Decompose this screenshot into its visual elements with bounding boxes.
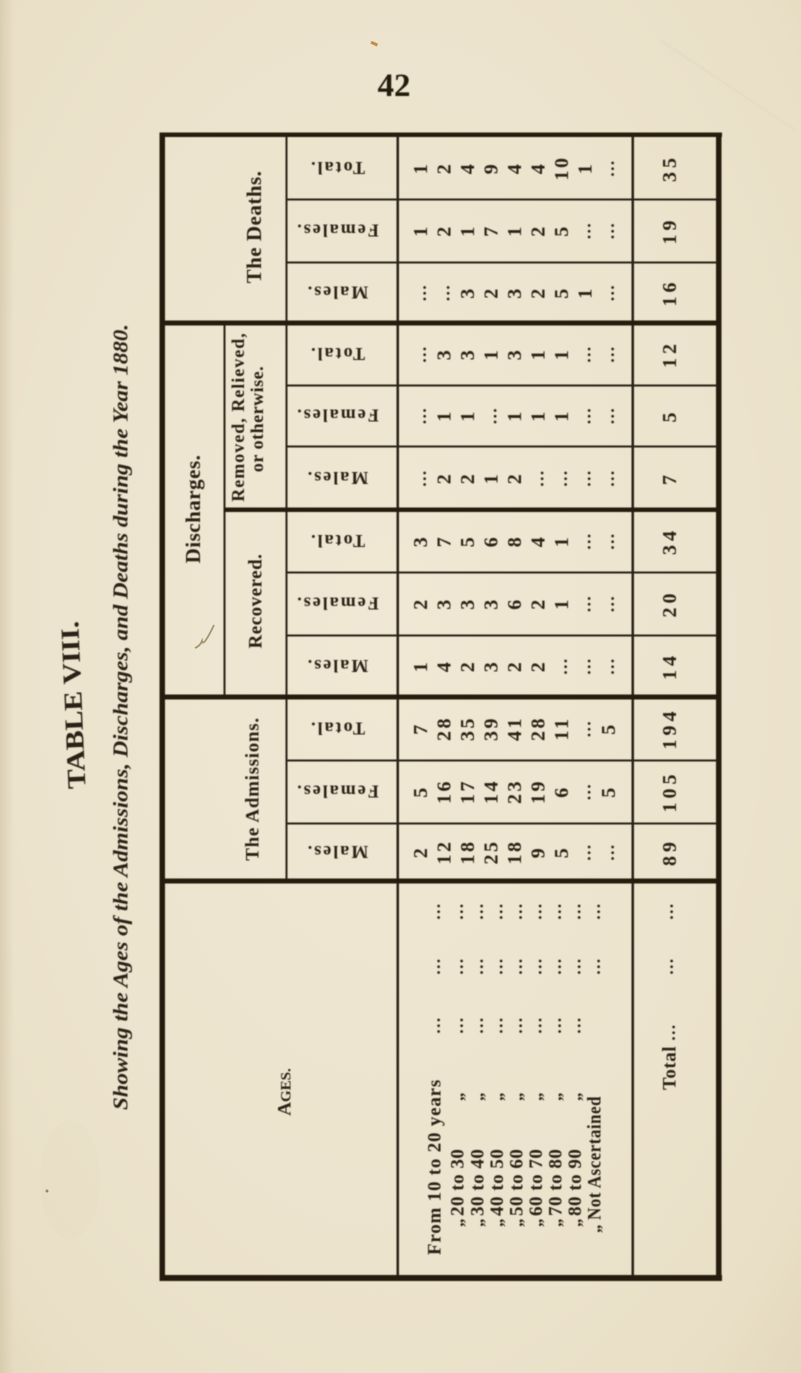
svg-text:...: ... <box>599 222 618 239</box>
svg-text:40 to 50: 40 to 50 <box>487 1149 508 1216</box>
svg-text:20: 20 <box>659 590 681 618</box>
svg-text:The Admissions.: The Admissions. <box>242 717 263 861</box>
svg-text:1: 1 <box>504 409 526 422</box>
svg-text:...: ... <box>411 345 430 362</box>
svg-text:5: 5 <box>410 785 432 798</box>
svg-text:7: 7 <box>433 535 455 548</box>
svg-text:1: 1 <box>457 409 479 422</box>
svg-text:9: 9 <box>527 846 549 859</box>
svg-text:„: „ <box>546 1219 565 1228</box>
svg-text:Females.: Females. <box>295 220 378 240</box>
svg-text:...: ... <box>575 783 594 800</box>
svg-text:1: 1 <box>551 597 573 610</box>
svg-text:...: ... <box>585 957 604 974</box>
svg-text:11: 11 <box>551 717 573 741</box>
svg-text:4: 4 <box>527 162 549 175</box>
svg-text:...: ... <box>487 957 506 974</box>
svg-text:Showing the Ages of the Admiss: Showing the Ages of the Admissions, Disc… <box>108 324 132 1110</box>
svg-text:...: ... <box>507 1016 526 1033</box>
svg-text:...: ... <box>448 1016 467 1033</box>
svg-text:AGES.: AGES. <box>274 1068 295 1116</box>
svg-text:42: 42 <box>378 68 411 104</box>
svg-text:Recovered.: Recovered. <box>245 554 266 649</box>
svg-text:1: 1 <box>433 409 455 422</box>
svg-text:12: 12 <box>433 840 455 865</box>
svg-text:5: 5 <box>598 785 620 798</box>
svg-text:2: 2 <box>527 286 549 299</box>
svg-text:3: 3 <box>433 597 455 610</box>
svg-text:34: 34 <box>659 527 681 555</box>
svg-text:...: ... <box>575 222 594 239</box>
svg-text:...: ... <box>411 407 430 424</box>
svg-text:...: ... <box>434 284 453 301</box>
svg-text:...: ... <box>448 957 467 974</box>
svg-text:Total.: Total. <box>309 531 365 551</box>
svg-text:...: ... <box>425 902 444 919</box>
svg-text:1: 1 <box>410 224 432 237</box>
svg-text:2: 2 <box>433 472 455 485</box>
svg-text:3: 3 <box>480 660 502 673</box>
svg-text:1: 1 <box>480 348 502 361</box>
svg-text:1: 1 <box>551 409 573 422</box>
svg-text:5: 5 <box>598 722 620 735</box>
svg-text:3: 3 <box>457 597 479 610</box>
svg-text:1: 1 <box>527 409 549 422</box>
svg-text:2: 2 <box>457 472 479 485</box>
svg-text:Discharges.: Discharges. <box>181 455 205 564</box>
svg-text:Females.: Females. <box>295 781 378 801</box>
svg-text:Total.: Total. <box>309 158 365 178</box>
svg-text:Males.: Males. <box>306 656 368 676</box>
svg-text:...: ... <box>575 469 594 486</box>
svg-text:16: 16 <box>433 779 455 804</box>
svg-text:Males.: Males. <box>306 282 368 302</box>
svg-text:20 to 30: 20 to 30 <box>447 1149 468 1216</box>
svg-text:28: 28 <box>527 716 549 741</box>
svg-text:7: 7 <box>659 471 681 485</box>
svg-text:...: ... <box>599 284 618 301</box>
svg-text:41: 41 <box>504 716 526 741</box>
svg-text:„: „ <box>565 1219 584 1228</box>
svg-text:9: 9 <box>480 162 502 175</box>
svg-text:Females.: Females. <box>295 405 378 425</box>
svg-text:...: ... <box>552 657 571 674</box>
svg-text:...: ... <box>599 595 618 612</box>
svg-text:3: 3 <box>480 597 502 610</box>
svg-text:or otherwise.: or otherwise. <box>247 366 267 472</box>
svg-text:...: ... <box>546 1016 565 1033</box>
svg-text:1: 1 <box>574 162 596 175</box>
svg-text:5: 5 <box>659 409 681 423</box>
svg-text:The Deaths.: The Deaths. <box>242 171 266 284</box>
svg-text:1: 1 <box>504 224 526 237</box>
svg-text:3: 3 <box>504 348 526 361</box>
svg-text:2: 2 <box>433 224 455 237</box>
svg-text:„: „ <box>585 1225 604 1234</box>
svg-text:60 to 70: 60 to 70 <box>526 1149 547 1216</box>
svg-text:...: ... <box>487 902 506 919</box>
svg-text:Males.: Males. <box>306 468 368 488</box>
svg-text:Males.: Males. <box>306 842 368 862</box>
svg-text:4: 4 <box>504 162 526 175</box>
svg-text:...: ... <box>425 1016 444 1033</box>
svg-text:Total.: Total. <box>309 718 365 738</box>
svg-text:19: 19 <box>659 217 681 245</box>
svg-text:39: 39 <box>480 716 502 741</box>
svg-text:194: 194 <box>659 708 681 750</box>
svg-text:„: „ <box>487 1093 506 1102</box>
svg-text:18: 18 <box>504 840 526 865</box>
svg-text:„: „ <box>448 1219 467 1228</box>
svg-text:5: 5 <box>551 224 573 237</box>
svg-text:From 10 to 20 years: From 10 to 20 years <box>424 1079 445 1255</box>
svg-text:5: 5 <box>551 846 573 859</box>
svg-text:...: ... <box>575 345 594 362</box>
svg-text:„: „ <box>487 1219 506 1228</box>
svg-text:3: 3 <box>433 348 455 361</box>
svg-text:...: ... <box>507 957 526 974</box>
svg-text:...: ... <box>546 902 565 919</box>
svg-text:...: ... <box>411 284 430 301</box>
svg-text:...: ... <box>599 532 618 549</box>
svg-text:6: 6 <box>480 535 502 548</box>
svg-text:...: ... <box>565 902 584 919</box>
svg-text:8: 8 <box>504 535 526 548</box>
svg-text:...: ... <box>599 345 618 362</box>
svg-text:...: ... <box>468 957 487 974</box>
svg-text:Females.: Females. <box>295 593 378 613</box>
svg-text:80 to 90: 80 to 90 <box>565 1149 586 1216</box>
svg-text:3: 3 <box>457 348 479 361</box>
svg-text:Total.: Total. <box>309 344 365 364</box>
svg-text:7: 7 <box>480 224 502 237</box>
svg-text:...: ... <box>575 720 594 737</box>
svg-text:...: ... <box>552 469 571 486</box>
svg-text:23: 23 <box>504 779 526 804</box>
svg-text:4: 4 <box>433 660 455 673</box>
svg-text:2: 2 <box>527 597 549 610</box>
svg-text:1: 1 <box>551 348 573 361</box>
svg-text:1: 1 <box>551 535 573 548</box>
svg-text:...: ... <box>658 957 677 974</box>
svg-text:1: 1 <box>480 472 502 485</box>
svg-text:...: ... <box>468 1016 487 1033</box>
svg-text:„: „ <box>468 1093 487 1102</box>
svg-text:2: 2 <box>504 660 526 673</box>
svg-text:3: 3 <box>410 535 432 548</box>
svg-text:...: ... <box>468 902 487 919</box>
svg-text:...: ... <box>658 902 677 919</box>
svg-text:...: ... <box>526 957 545 974</box>
svg-text:...: ... <box>660 1023 679 1040</box>
svg-text:...: ... <box>599 657 618 674</box>
svg-text:„: „ <box>565 1093 584 1102</box>
svg-text:„: „ <box>546 1093 565 1102</box>
svg-text:28: 28 <box>433 716 455 741</box>
svg-text:...: ... <box>528 469 547 486</box>
svg-text:...: ... <box>585 902 604 919</box>
svg-text:4: 4 <box>457 162 479 175</box>
svg-text:105: 105 <box>659 771 681 813</box>
svg-text:2: 2 <box>527 660 549 673</box>
svg-text:89: 89 <box>659 838 681 866</box>
svg-text:5: 5 <box>551 286 573 299</box>
svg-text:14: 14 <box>659 652 681 680</box>
svg-text:1: 1 <box>527 348 549 361</box>
svg-text:5: 5 <box>457 535 479 548</box>
svg-text:1: 1 <box>410 660 432 673</box>
svg-text:2: 2 <box>504 472 526 485</box>
svg-text:50 to 60: 50 to 60 <box>506 1149 527 1216</box>
svg-text:„: „ <box>507 1093 526 1102</box>
svg-text:1: 1 <box>410 162 432 175</box>
svg-text:...: ... <box>546 957 565 974</box>
svg-text:...: ... <box>411 469 430 486</box>
svg-text:10: 10 <box>551 156 573 181</box>
svg-text:„: „ <box>468 1219 487 1228</box>
svg-text:2: 2 <box>410 597 432 610</box>
svg-text:2: 2 <box>410 846 432 859</box>
svg-text:1: 1 <box>574 286 596 299</box>
svg-text:...: ... <box>575 595 594 612</box>
svg-text:3: 3 <box>504 286 526 299</box>
svg-text:6: 6 <box>551 785 573 798</box>
svg-text:...: ... <box>565 957 584 974</box>
svg-text:2: 2 <box>433 162 455 175</box>
svg-text:19: 19 <box>527 779 549 804</box>
svg-text:...: ... <box>599 843 618 860</box>
svg-text:12: 12 <box>659 340 681 368</box>
svg-text:70 to 80: 70 to 80 <box>545 1149 566 1216</box>
svg-text:„: „ <box>526 1093 545 1102</box>
svg-text:...: ... <box>575 532 594 549</box>
svg-text:...: ... <box>526 902 545 919</box>
svg-text:Removed, Relieved,: Removed, Relieved, <box>228 332 248 501</box>
svg-text:...: ... <box>481 407 500 424</box>
svg-text:18: 18 <box>457 840 479 865</box>
svg-text:25: 25 <box>480 840 502 865</box>
svg-text:35: 35 <box>659 154 681 182</box>
svg-text:...: ... <box>448 902 467 919</box>
svg-text:...: ... <box>565 1016 584 1033</box>
svg-text:4: 4 <box>527 535 549 548</box>
svg-text:3: 3 <box>457 286 479 299</box>
svg-text:Total: Total <box>659 1046 680 1090</box>
svg-text:2: 2 <box>527 224 549 237</box>
svg-text:17: 17 <box>457 779 479 804</box>
svg-text:2: 2 <box>457 660 479 673</box>
svg-text:1: 1 <box>457 224 479 237</box>
svg-text:Not Ascertained: Not Ascertained <box>584 1096 605 1220</box>
svg-text:6: 6 <box>504 597 526 610</box>
svg-text:...: ... <box>575 657 594 674</box>
svg-text:...: ... <box>599 407 618 424</box>
svg-text:„: „ <box>507 1219 526 1228</box>
svg-text:14: 14 <box>480 779 502 804</box>
svg-text:30 to 40: 30 to 40 <box>467 1149 488 1216</box>
svg-text:„: „ <box>526 1219 545 1228</box>
svg-text:2: 2 <box>480 286 502 299</box>
svg-text:...: ... <box>526 1016 545 1033</box>
svg-text:...: ... <box>575 407 594 424</box>
svg-text:...: ... <box>575 843 594 860</box>
svg-text:...: ... <box>599 159 618 176</box>
svg-text:35: 35 <box>457 716 479 741</box>
svg-text:...: ... <box>425 957 444 974</box>
svg-text:16: 16 <box>659 279 681 307</box>
svg-text:...: ... <box>507 902 526 919</box>
svg-text:7: 7 <box>410 722 432 735</box>
svg-text:...: ... <box>599 469 618 486</box>
svg-text:...: ... <box>487 1016 506 1033</box>
svg-text:„: „ <box>448 1093 467 1102</box>
